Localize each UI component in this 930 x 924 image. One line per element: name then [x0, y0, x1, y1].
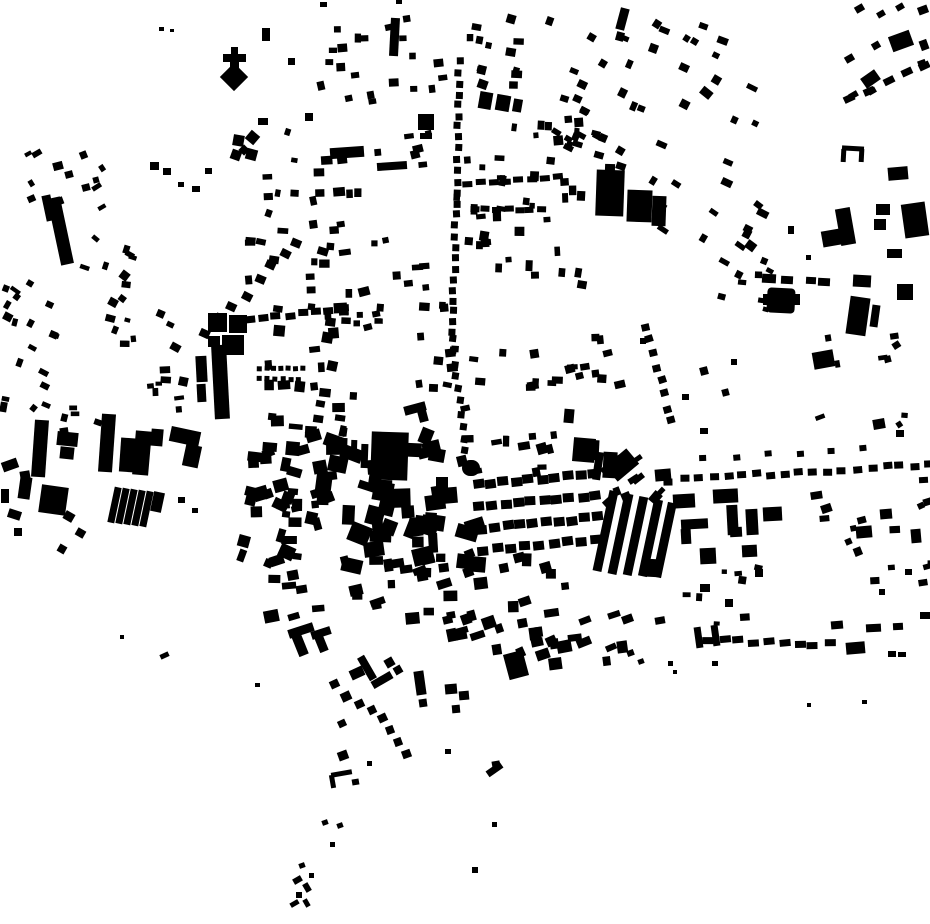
figure-ground-map: [0, 0, 930, 924]
cluster-buildings-layer: [1, 13, 930, 670]
church-landmark: [220, 47, 248, 91]
explicit-buildings-layer: [0, 0, 930, 908]
map-viewport: [0, 0, 930, 924]
